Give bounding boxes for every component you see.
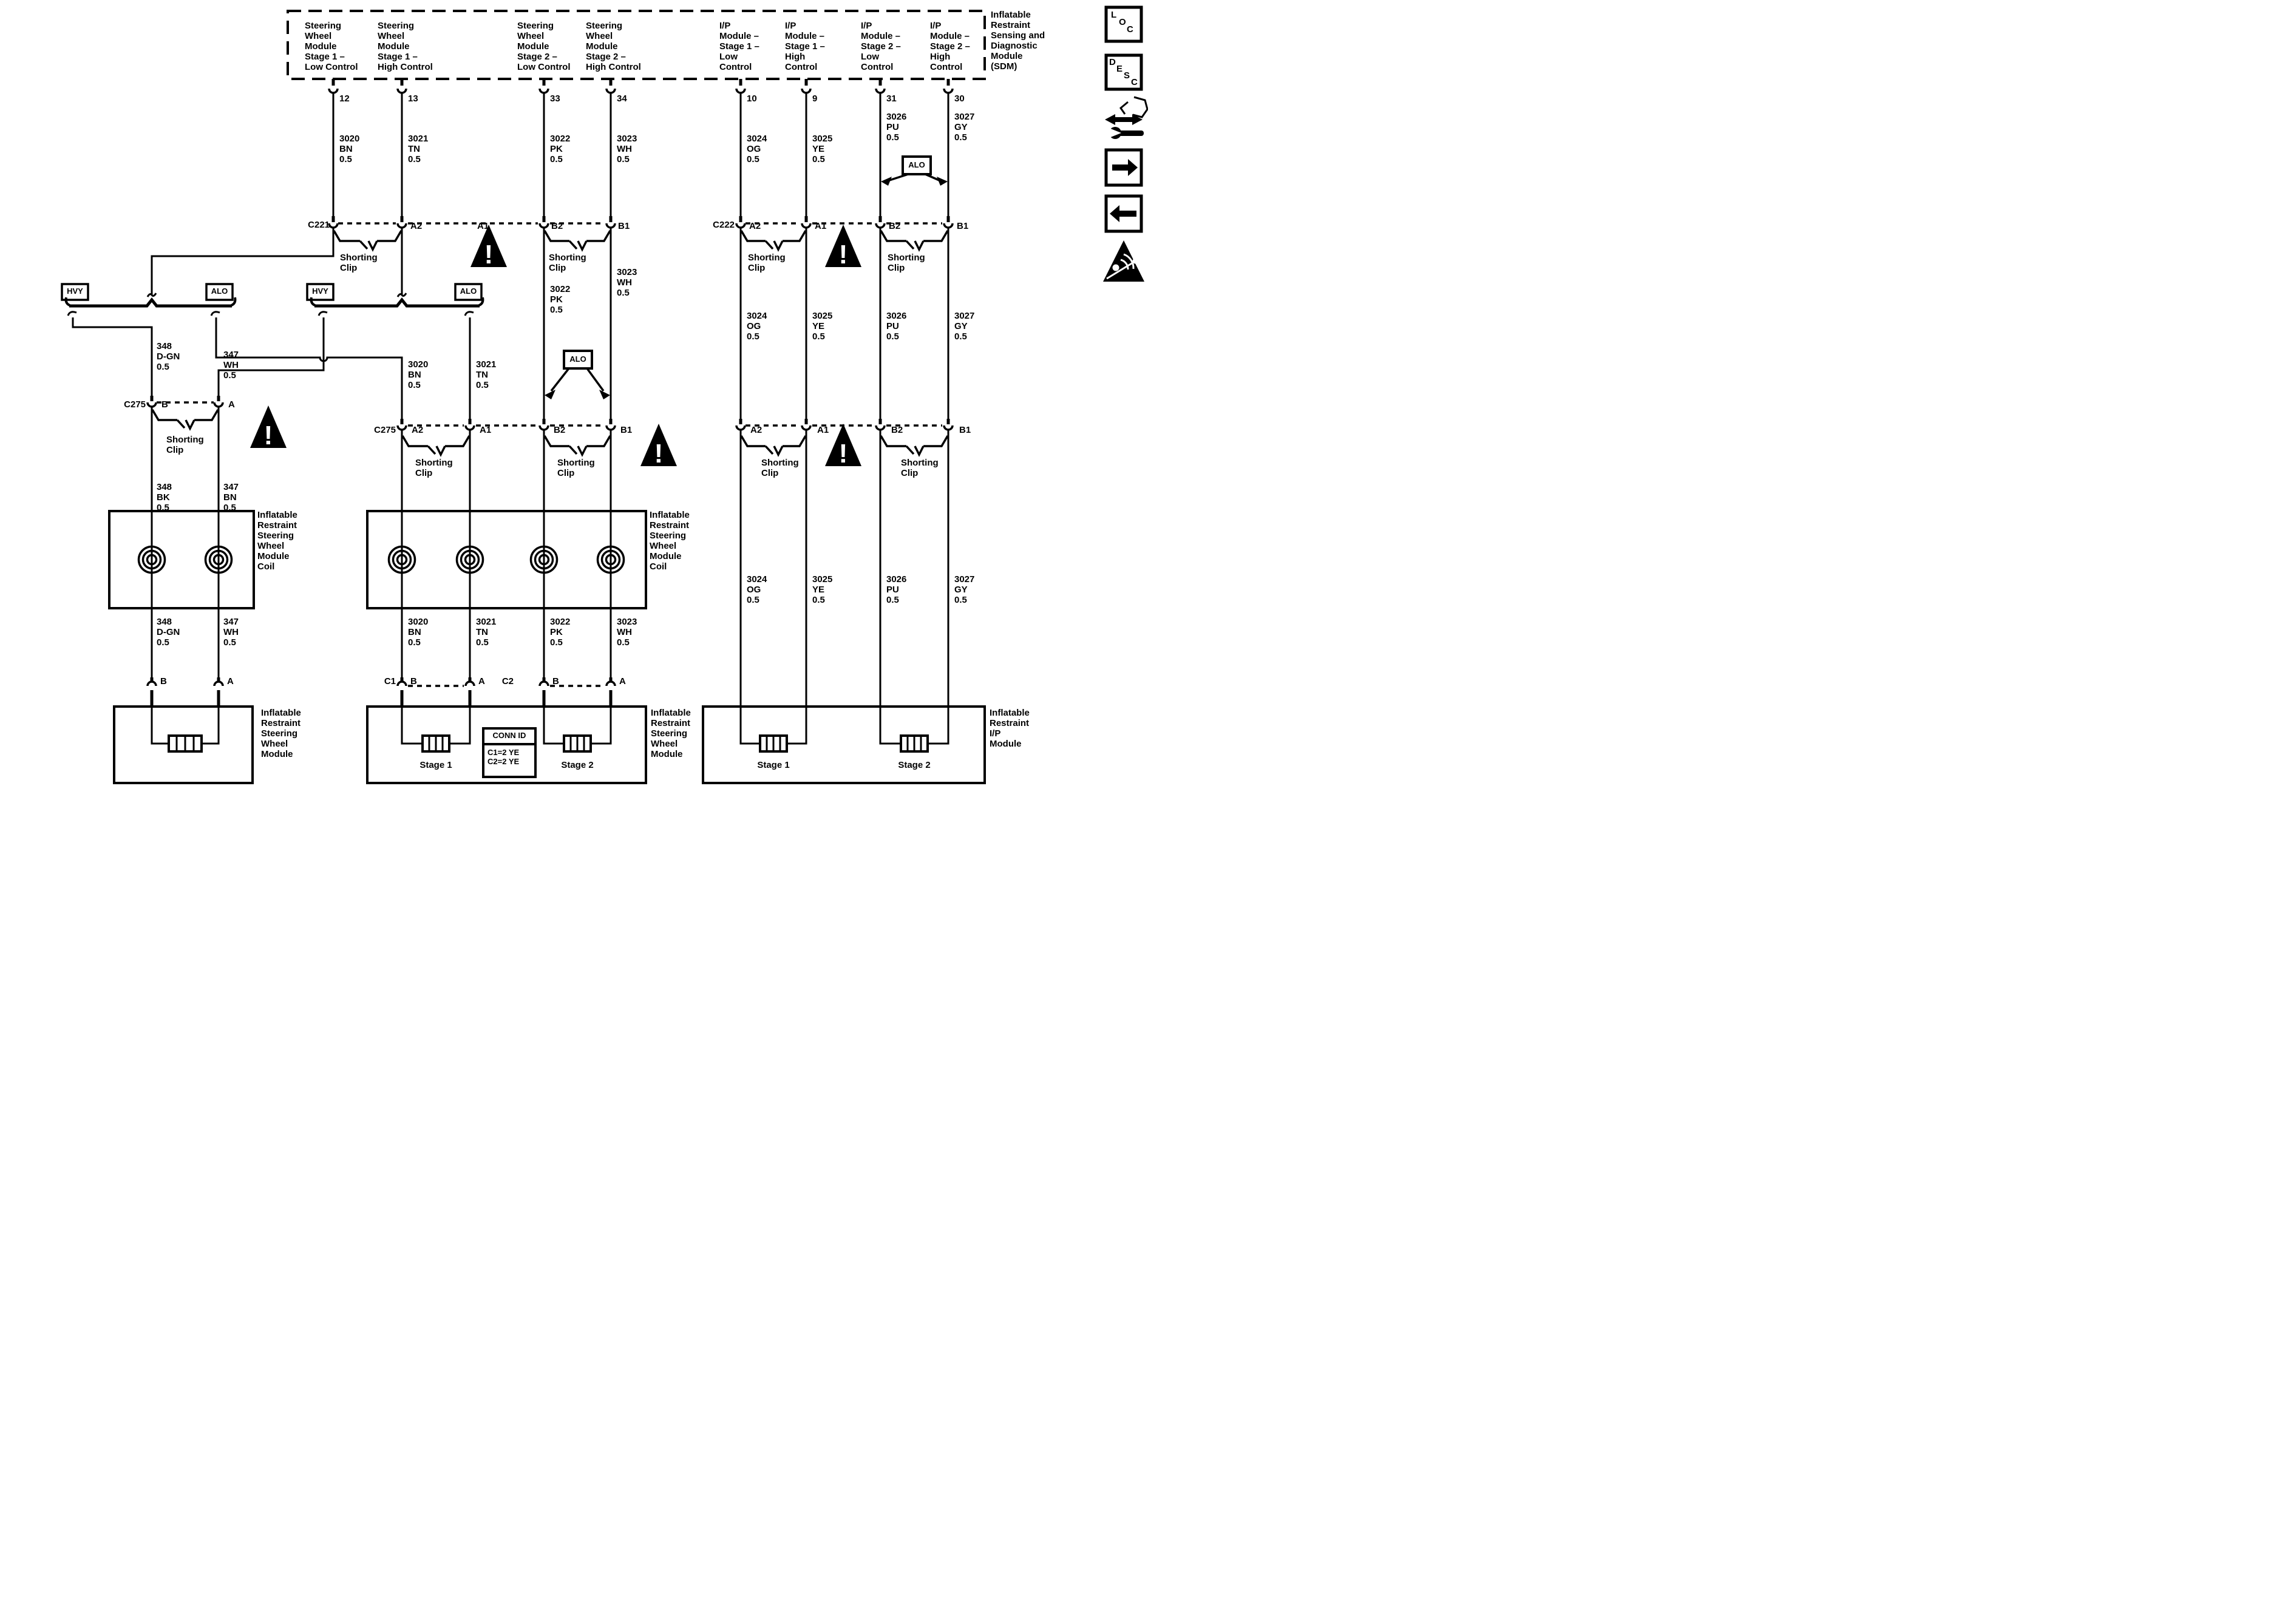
wire-label-3022-mid: 3022 PK 0.5 xyxy=(550,284,570,315)
wire-label-3022-top: 3022 PK 0.5 xyxy=(550,134,570,164)
c221-pin-a2: A2 xyxy=(410,221,422,231)
svg-text:!: ! xyxy=(484,240,494,269)
pin-number-31: 31 xyxy=(886,93,897,104)
row2-exit-wires xyxy=(402,430,948,744)
shorting-clip-label: Shorting Clip xyxy=(557,458,595,478)
stage1-label-ip: Stage 1 xyxy=(749,760,798,770)
c2-pin-a: A xyxy=(619,676,626,686)
svg-text:!: ! xyxy=(839,240,848,269)
module-label-ip-stage2-high: I/P Module – Stage 2 – High Control xyxy=(930,21,970,72)
shorting-clip-symbol-c275L xyxy=(152,410,218,429)
stage2-label-ip: Stage 2 xyxy=(890,760,939,770)
wire-label-3027-top: 3027 GY 0.5 xyxy=(954,112,974,143)
module-label-sw-stage2-low: Steering Wheel Module Stage 2 – Low Cont… xyxy=(517,21,570,72)
wire-label-3023-low: 3023 WH 0.5 xyxy=(617,617,637,648)
connector-label-c1: C1 xyxy=(335,676,396,686)
svg-text:!: ! xyxy=(839,439,848,469)
connector-label-c222: C222 xyxy=(674,220,735,230)
c221-pin-b2: B2 xyxy=(551,221,563,231)
wire-label-3021-low: 3021 TN 0.5 xyxy=(476,617,496,648)
forward-arrow-icon[interactable] xyxy=(1106,150,1141,185)
c1-pin-b: B xyxy=(410,676,417,686)
coil-spirals xyxy=(139,547,624,573)
module-label-ip-stage1-high: I/P Module – Stage 1 – High Control xyxy=(785,21,825,72)
shorting-clip-label: Shorting Clip xyxy=(888,253,925,273)
conn-id-header: CONN ID xyxy=(483,731,535,740)
c275M-pin-a1: A1 xyxy=(480,425,491,435)
connector-label-c221: C221 xyxy=(269,220,330,230)
wire-label-348-dgn-low: 348 D-GN 0.5 xyxy=(157,617,180,648)
c222-pin-b2: B2 xyxy=(889,221,900,231)
airbag-warning-icon[interactable] xyxy=(1103,240,1144,282)
conn-id-rows: C1=2 YE C2=2 YE xyxy=(487,748,519,766)
alo-tag-middle: ALO xyxy=(564,354,592,364)
wire-label-3024-top: 3024 OG 0.5 xyxy=(747,134,767,164)
sdm-connector-cups xyxy=(329,89,953,93)
wire-label-3020-top: 3020 BN 0.5 xyxy=(339,134,359,164)
c221-pin-a1: A1 xyxy=(477,221,489,231)
ip-module-label: Inflatable Restraint I/P Module xyxy=(990,708,1030,749)
ip-row-pin-b2: B2 xyxy=(891,425,903,435)
wire-label-3025-mid: 3025 YE 0.5 xyxy=(812,311,832,342)
stage2-label-swm: Stage 2 xyxy=(553,760,602,770)
wire-label-3021-mid: 3021 TN 0.5 xyxy=(476,359,496,390)
sdm-module-label: Inflatable Restraint Sensing and Diagnos… xyxy=(991,10,1045,72)
c275M-pin-b2: B2 xyxy=(554,425,565,435)
wire-label-3020-mid: 3020 BN 0.5 xyxy=(408,359,428,390)
c275L-pin-b: B xyxy=(161,399,168,410)
svg-text:!: ! xyxy=(264,421,273,450)
module-internal-wires xyxy=(152,707,611,744)
wire-label-3025-top: 3025 YE 0.5 xyxy=(812,134,832,164)
pin-number-33: 33 xyxy=(550,93,560,104)
c275L-pin-a: A xyxy=(228,399,235,410)
wire-label-3023-mid: 3023 WH 0.5 xyxy=(617,267,637,298)
ip-row-pin-a2: A2 xyxy=(750,425,762,435)
loc-letter: C xyxy=(1127,24,1133,35)
shorting-clip-label: Shorting Clip xyxy=(761,458,799,478)
svg-text:!: ! xyxy=(654,439,664,469)
loc-letter: O xyxy=(1119,17,1126,27)
row1-wire-caps xyxy=(333,216,948,222)
alo-tag-1: ALO xyxy=(206,286,233,296)
swmL-pin-b: B xyxy=(160,676,167,686)
hvy-tag-1: HVY xyxy=(62,286,88,296)
shorting-clip-label: Shorting Clip xyxy=(340,253,378,273)
schematic-artwork: ! ! ! ! ! xyxy=(0,0,1148,808)
pin-number-10: 10 xyxy=(747,93,757,104)
row2-wire-caps xyxy=(402,419,948,424)
shorting-clip-label: Shorting Clip xyxy=(549,253,586,273)
wire-label-3020-low: 3020 BN 0.5 xyxy=(408,617,428,648)
desc-letter: E xyxy=(1116,64,1123,73)
desc-letter: C xyxy=(1131,78,1138,87)
wire-label-348-bk: 348 BK 0.5 xyxy=(157,482,172,513)
coil-module-label-left: Inflatable Restraint Steering Wheel Modu… xyxy=(257,510,297,572)
wire-label-3026-mid: 3026 PU 0.5 xyxy=(886,311,906,342)
module-label-sw-stage1-high: Steering Wheel Module Stage 1 – High Con… xyxy=(378,21,433,72)
wire-label-3027-low: 3027 GY 0.5 xyxy=(954,574,974,605)
hvy-tag-2: HVY xyxy=(307,286,333,296)
wire-label-3026-top: 3026 PU 0.5 xyxy=(886,112,906,143)
pin-number-34: 34 xyxy=(617,93,627,104)
wire-label-3025-low: 3025 YE 0.5 xyxy=(812,574,832,605)
wire-label-348-dgn: 348 D-GN 0.5 xyxy=(157,341,180,372)
wiring-diagram-page: ! ! ! ! ! xyxy=(0,0,1148,808)
swm-box-left xyxy=(114,707,253,783)
bus-feed-splice-marks xyxy=(148,293,406,297)
wire-label-347-bn: 347 BN 0.5 xyxy=(223,482,239,513)
wire-label-347-wh: 347 WH 0.5 xyxy=(223,350,239,381)
alo-tag-2: ALO xyxy=(455,286,481,296)
wire-label-3024-mid: 3024 OG 0.5 xyxy=(747,311,767,342)
shorting-clip-label: Shorting Clip xyxy=(901,458,939,478)
swm-module-label-left: Inflatable Restraint Steering Wheel Modu… xyxy=(261,708,301,759)
swmL-pin-a: A xyxy=(227,676,234,686)
shorting-clip-symbols-row1 xyxy=(334,231,948,249)
repair-wrench-icon[interactable] xyxy=(1105,97,1147,139)
module-label-ip-stage1-low: I/P Module – Stage 1 – Low Control xyxy=(719,21,759,72)
c222-pin-a1: A1 xyxy=(815,221,826,231)
alo-tag-top: ALO xyxy=(903,160,931,169)
c275M-pin-b1: B1 xyxy=(620,425,632,435)
swm-module-label-middle: Inflatable Restraint Steering Wheel Modu… xyxy=(651,708,691,759)
module-label-sw-stage2-high: Steering Wheel Module Stage 2 – High Con… xyxy=(586,21,641,72)
bus-drop-hooks xyxy=(68,312,474,316)
wire-label-3024-low: 3024 OG 0.5 xyxy=(747,574,767,605)
wire-label-347-wh-low: 347 WH 0.5 xyxy=(223,617,239,648)
loc-letter: L xyxy=(1111,10,1116,20)
module-label-sw-stage1-low: Steering Wheel Module Stage 1 – Low Cont… xyxy=(305,21,358,72)
c2-pin-b: B xyxy=(552,676,559,686)
wire-label-3022-low: 3022 PK 0.5 xyxy=(550,617,570,648)
connector-label-c275-mid: C275 xyxy=(335,425,396,435)
wire-label-3026-low: 3026 PU 0.5 xyxy=(886,574,906,605)
c222-pin-b1: B1 xyxy=(957,221,968,231)
ip-row-pin-a1: A1 xyxy=(817,425,829,435)
shorting-clip-symbols-row2 xyxy=(402,436,948,455)
desc-letter: D xyxy=(1109,58,1116,67)
c222-pin-a2: A2 xyxy=(749,221,761,231)
bus-end-curls xyxy=(66,297,483,305)
shorting-clip-label: Shorting Clip xyxy=(166,435,204,455)
shorting-clip-label: Shorting Clip xyxy=(415,458,453,478)
wire-label-3023-top: 3023 WH 0.5 xyxy=(617,134,637,164)
shorting-clip-label: Shorting Clip xyxy=(748,253,786,273)
pin-number-9: 9 xyxy=(812,93,817,104)
wire-label-3021-top: 3021 TN 0.5 xyxy=(408,134,428,164)
c275M-pin-a2: A2 xyxy=(412,425,423,435)
pin-number-12: 12 xyxy=(339,93,350,104)
module-label-ip-stage2-low: I/P Module – Stage 2 – Low Control xyxy=(861,21,901,72)
harness-bus-lines xyxy=(69,300,480,306)
wire-label-3027-mid: 3027 GY 0.5 xyxy=(954,311,974,342)
coil-box-middle xyxy=(367,511,646,608)
bottom-entry-stubs xyxy=(152,690,611,707)
pin-number-30: 30 xyxy=(954,93,965,104)
stage1-label-swm: Stage 1 xyxy=(412,760,460,770)
pin-number-13: 13 xyxy=(408,93,418,104)
ip-module-box xyxy=(703,707,985,783)
coil-module-label-middle: Inflatable Restraint Steering Wheel Modu… xyxy=(650,510,690,572)
c221-pin-b1: B1 xyxy=(618,221,630,231)
connector-label-c275-left: C275 xyxy=(85,399,146,410)
desc-letter: S xyxy=(1124,71,1130,80)
ip-row-pin-b1: B1 xyxy=(959,425,971,435)
back-arrow-icon[interactable] xyxy=(1106,196,1141,231)
connector-label-c2: C2 xyxy=(477,676,514,686)
